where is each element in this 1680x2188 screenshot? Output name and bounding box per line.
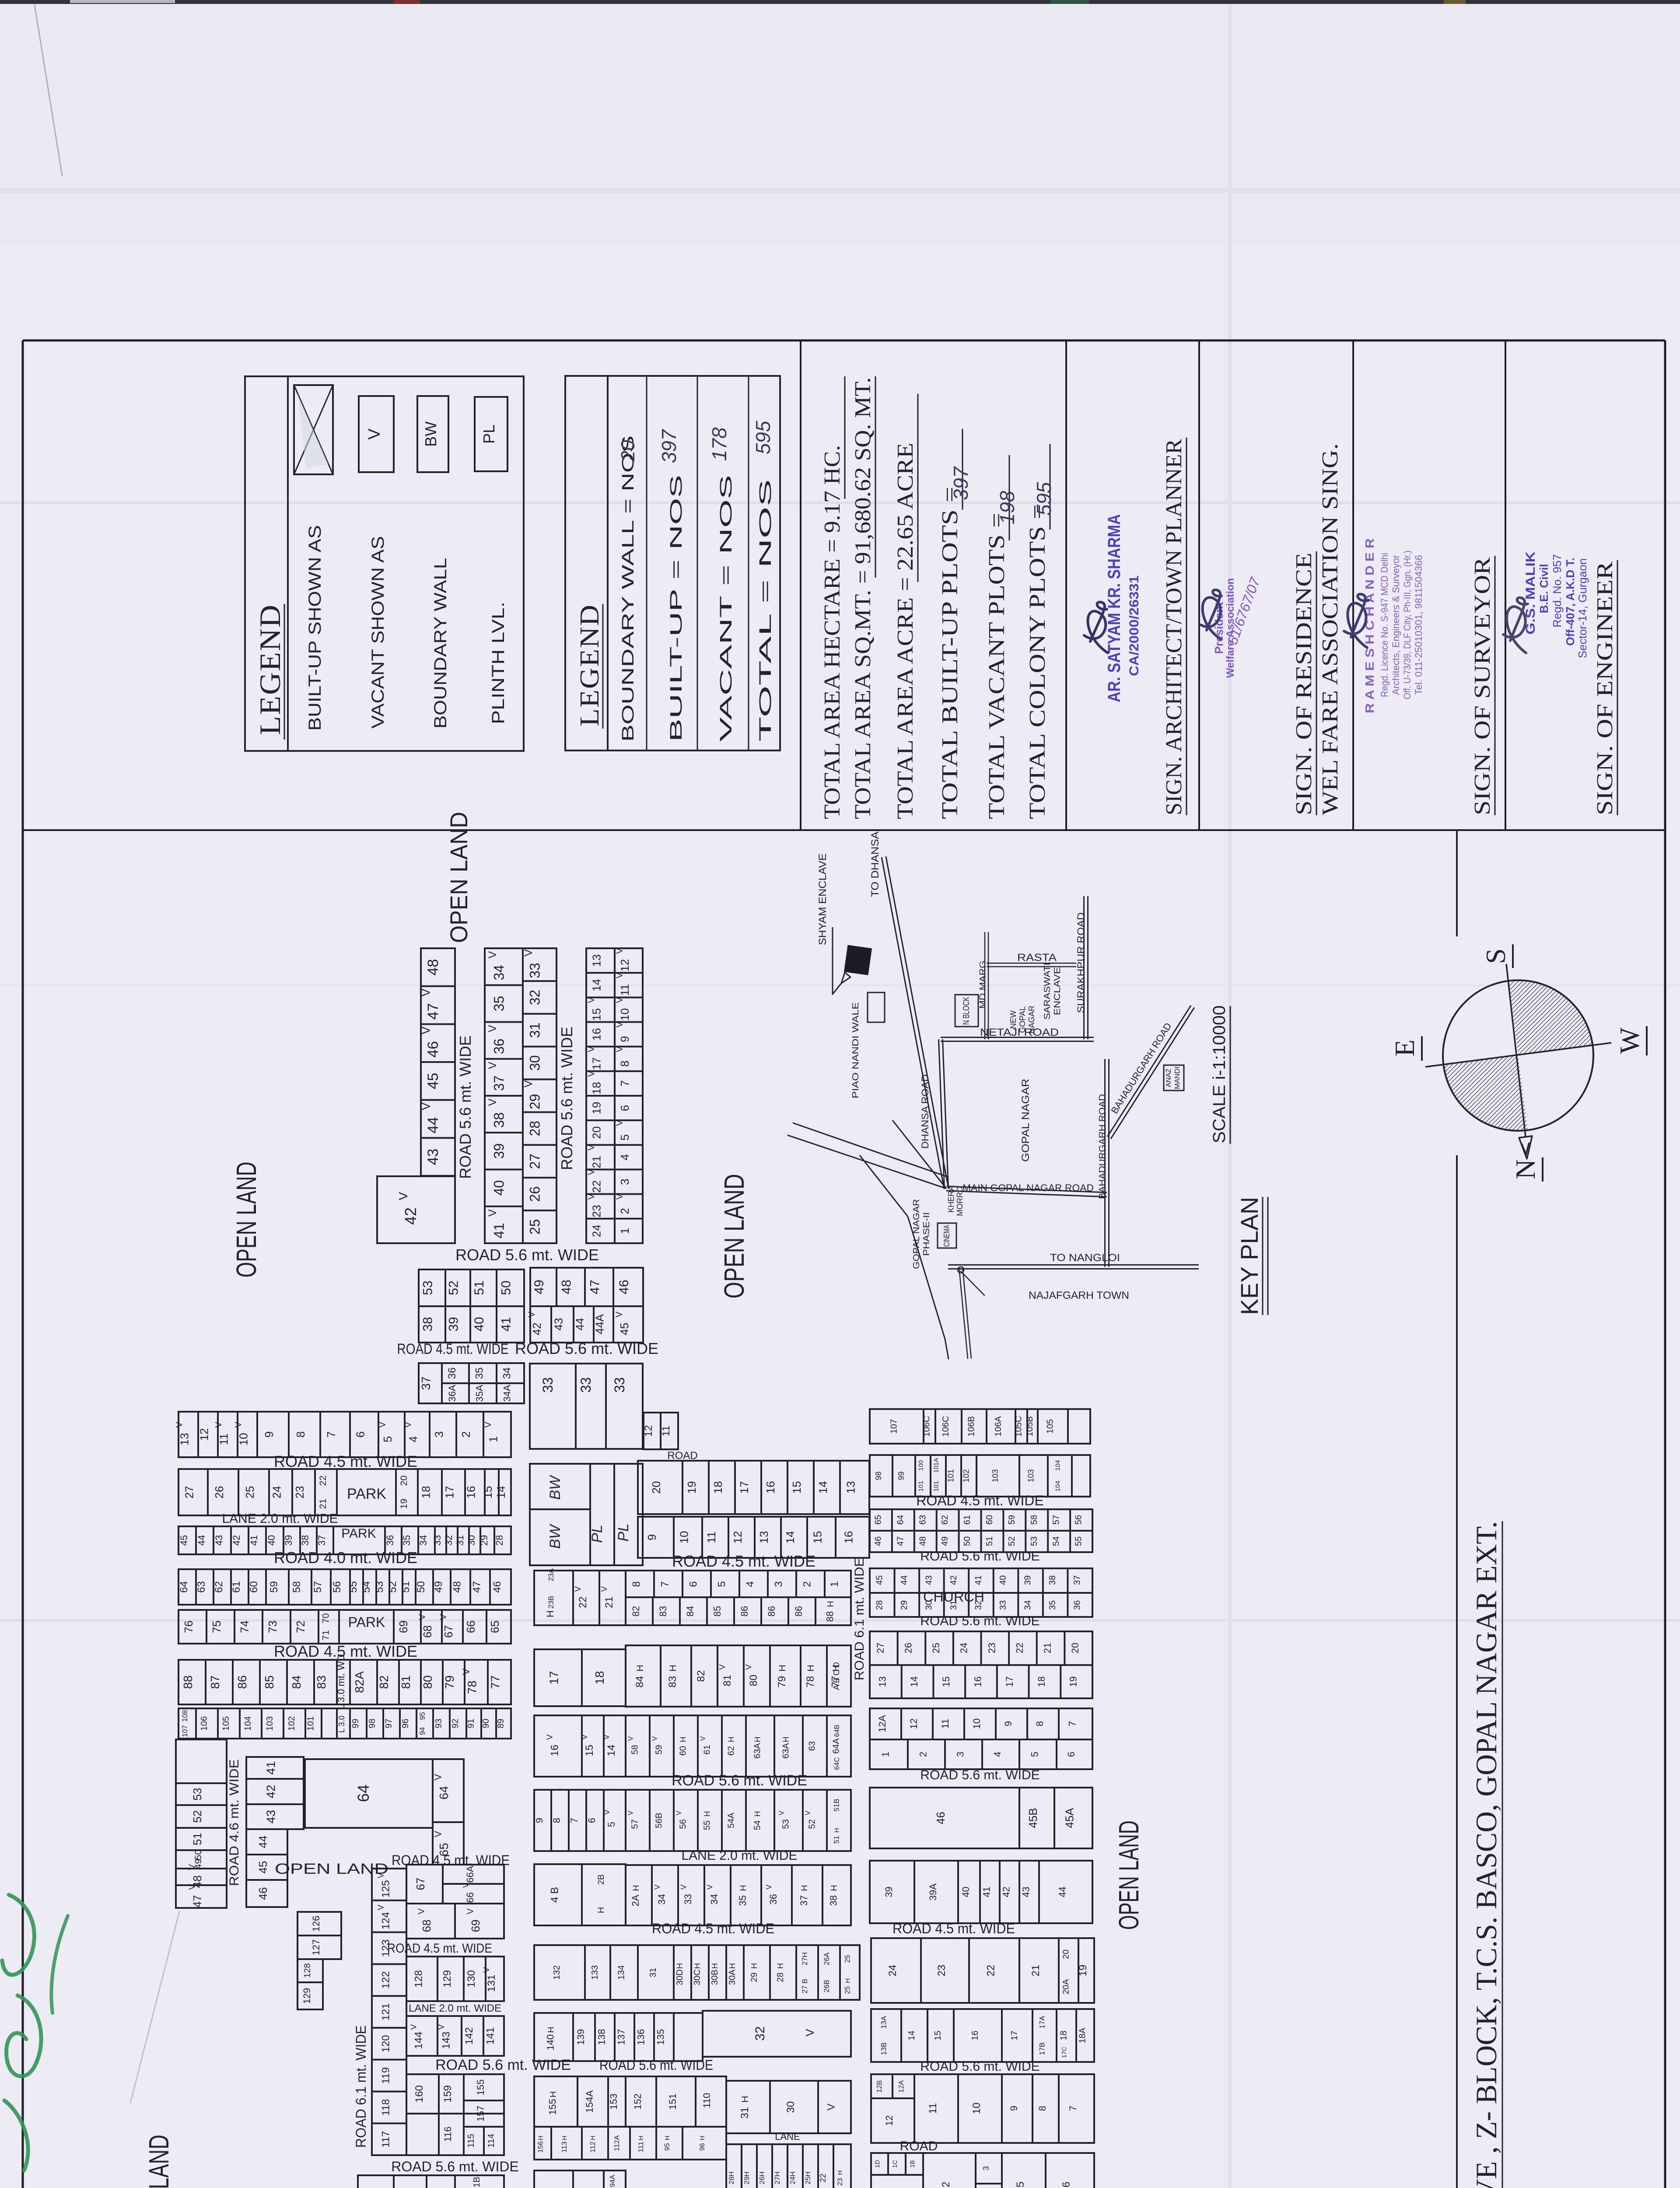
svg-text:Architects, Engineers & Survey: Architects, Engineers & Surveyor — [1390, 555, 1401, 695]
svg-text:20: 20 — [1061, 1950, 1071, 1959]
svg-text:12A: 12A — [877, 1715, 888, 1732]
svg-text:V: V — [615, 1120, 625, 1126]
svg-text:22: 22 — [985, 1965, 997, 1977]
svg-text:42: 42 — [231, 1535, 242, 1546]
svg-text:64C: 64C — [833, 1757, 841, 1770]
svg-text:78: 78 — [805, 1676, 816, 1688]
svg-text:25: 25 — [931, 1643, 941, 1653]
svg-text:63: 63 — [196, 1581, 207, 1593]
svg-text:102: 102 — [287, 1716, 297, 1731]
svg-text:V: V — [486, 1209, 499, 1217]
svg-text:16: 16 — [973, 1676, 983, 1687]
svg-text:106C: 106C — [922, 1416, 932, 1437]
svg-text:V: V — [587, 1193, 596, 1199]
svg-text:35: 35 — [491, 996, 507, 1012]
svg-text:V: V — [587, 997, 596, 1003]
svg-text:21: 21 — [318, 1499, 328, 1509]
svg-text:21: 21 — [590, 1156, 603, 1168]
svg-text:V: V — [522, 949, 535, 957]
svg-text:58: 58 — [291, 1581, 303, 1593]
svg-text:61: 61 — [703, 1745, 712, 1754]
svg-text:36: 36 — [1073, 1600, 1082, 1610]
svg-text:23: 23 — [986, 1643, 997, 1653]
svg-text:SIGN. OF SURVEYOR: SIGN. OF SURVEYOR — [1470, 557, 1495, 815]
svg-text:3: 3 — [773, 1581, 785, 1587]
svg-text:33: 33 — [432, 1535, 443, 1546]
svg-text:KEY PLAN: KEY PLAN — [1235, 1197, 1263, 1315]
svg-text:17: 17 — [590, 1057, 603, 1070]
svg-text:BW: BW — [547, 1475, 563, 1500]
svg-text:15: 15 — [941, 1676, 952, 1687]
svg-text:114: 114 — [486, 2134, 496, 2148]
svg-text:51: 51 — [191, 1833, 204, 1845]
svg-text:ROAD 5.6 mt. WIDE: ROAD 5.6 mt. WIDE — [456, 1035, 474, 1179]
svg-text:154A: 154A — [584, 2090, 595, 2113]
svg-text:101: 101 — [306, 1716, 316, 1731]
svg-text:76: 76 — [182, 1620, 195, 1633]
svg-text:3: 3 — [433, 1431, 446, 1438]
svg-text:33: 33 — [682, 1894, 693, 1904]
svg-text:V: V — [486, 951, 499, 958]
svg-text:43: 43 — [213, 1535, 224, 1546]
svg-text:WEL FARE ASSOCIATION SING.: WEL FARE ASSOCIATION SING. — [1318, 443, 1343, 815]
svg-text:27H: 27H — [774, 2171, 781, 2184]
svg-text:25: 25 — [844, 1986, 852, 1994]
svg-text:TOTAL COLONY PLOTS =: TOTAL COLONY PLOTS = — [1025, 504, 1050, 819]
svg-text:37: 37 — [419, 1376, 433, 1390]
svg-text:56: 56 — [1074, 1515, 1084, 1525]
svg-text:7: 7 — [659, 1581, 671, 1587]
svg-text:V: V — [175, 1422, 184, 1428]
svg-text:5: 5 — [606, 1822, 617, 1827]
svg-text:38: 38 — [828, 1895, 839, 1906]
svg-text:ROAD 4.5 mt. WIDE: ROAD 4.5 mt. WIDE — [387, 1941, 492, 1956]
svg-text:H: H — [753, 1811, 762, 1817]
svg-text:GOPAL NAGAR: GOPAL NAGAR — [1020, 1079, 1032, 1162]
svg-text:7: 7 — [1067, 1721, 1078, 1726]
svg-text:79: 79 — [776, 1676, 788, 1688]
svg-text:142: 142 — [463, 2027, 475, 2044]
svg-text:61: 61 — [231, 1581, 242, 1593]
svg-text:64: 64 — [178, 1581, 190, 1593]
svg-text:41: 41 — [974, 1575, 983, 1585]
svg-text:127: 127 — [311, 1939, 322, 1956]
svg-text:H: H — [675, 1963, 684, 1969]
svg-text:MANDI: MANDI — [1174, 1066, 1181, 1089]
svg-text:3: 3 — [982, 2166, 990, 2170]
svg-text:83: 83 — [315, 1675, 328, 1689]
svg-text:63: 63 — [808, 1741, 817, 1751]
svg-text:V: V — [587, 1071, 596, 1077]
svg-text:125: 125 — [380, 1880, 392, 1897]
svg-text:105C: 105C — [1014, 1416, 1024, 1437]
svg-text:2B: 2B — [596, 1874, 606, 1885]
svg-text:13: 13 — [178, 1433, 191, 1445]
svg-text:16: 16 — [590, 1028, 603, 1041]
svg-text:H: H — [667, 1665, 678, 1672]
svg-text:24: 24 — [590, 1224, 603, 1237]
svg-text:22: 22 — [577, 1596, 589, 1608]
svg-text:9: 9 — [262, 1431, 276, 1438]
svg-text:17B: 17B — [1039, 2042, 1046, 2055]
svg-text:V: V — [214, 1422, 224, 1428]
svg-text:61: 61 — [962, 1515, 972, 1525]
svg-text:60: 60 — [985, 1515, 994, 1525]
svg-text:ROAD 5.6 mt. WIDE: ROAD 5.6 mt. WIDE — [515, 1339, 658, 1357]
svg-text:V: V — [188, 1864, 197, 1870]
svg-text:87: 87 — [208, 1675, 222, 1689]
svg-text:90: 90 — [481, 1718, 491, 1728]
svg-text:SCALE i-1:10000: SCALE i-1:10000 — [1210, 1006, 1229, 1143]
svg-text:V: V — [486, 1062, 499, 1069]
svg-text:PIAO NANDI WALE: PIAO NANDI WALE — [851, 1002, 861, 1098]
svg-text:83: 83 — [658, 1606, 668, 1616]
svg-text:12A: 12A — [898, 2080, 905, 2093]
svg-text:137: 137 — [616, 2029, 627, 2045]
svg-text:Sector-14, Gurgaon: Sector-14, Gurgaon — [1576, 558, 1589, 658]
svg-text:15: 15 — [584, 1745, 595, 1757]
svg-text:104: 104 — [1055, 1460, 1062, 1471]
svg-text:37: 37 — [798, 1895, 809, 1906]
svg-text:29: 29 — [479, 1535, 490, 1546]
svg-text:V: V — [651, 1736, 659, 1741]
svg-text:23: 23 — [836, 2178, 844, 2186]
svg-text:80: 80 — [421, 1675, 434, 1689]
svg-text:6: 6 — [688, 1581, 700, 1587]
svg-text:OPEN LAND: OPEN LAND — [445, 812, 472, 943]
svg-text:86: 86 — [235, 1675, 249, 1689]
svg-text:ROAD 5.6 mt. WIDE: ROAD 5.6 mt. WIDE — [920, 1549, 1039, 1564]
svg-text:34: 34 — [656, 1894, 667, 1904]
svg-text:40: 40 — [960, 1886, 971, 1897]
svg-text:14: 14 — [784, 1531, 797, 1544]
svg-text:V: V — [778, 1810, 786, 1815]
svg-text:H: H — [739, 2096, 750, 2103]
svg-text:51B: 51B — [833, 1799, 841, 1811]
svg-text:V: V — [602, 1809, 611, 1815]
svg-text:45A: 45A — [1063, 1808, 1076, 1828]
svg-text:44: 44 — [196, 1535, 207, 1546]
svg-text:2: 2 — [459, 1431, 472, 1438]
svg-text:44A: 44A — [593, 1314, 606, 1334]
svg-text:LANE 2.0 mt. WIDE: LANE 2.0 mt. WIDE — [222, 1511, 338, 1526]
svg-text:1: 1 — [487, 1436, 500, 1442]
svg-text:27: 27 — [527, 1154, 543, 1169]
svg-text:8: 8 — [551, 1818, 562, 1823]
svg-text:157: 157 — [475, 2106, 486, 2122]
svg-text:8: 8 — [294, 1431, 307, 1438]
svg-text:7: 7 — [618, 1080, 631, 1087]
svg-text:26A: 26A — [823, 1953, 831, 1965]
svg-text:H: H — [805, 1665, 816, 1672]
svg-text:10: 10 — [237, 1433, 250, 1445]
svg-text:H: H — [834, 1828, 841, 1833]
svg-text:BW: BW — [422, 421, 440, 447]
svg-text:H: H — [679, 1737, 688, 1743]
svg-text:68: 68 — [420, 1919, 433, 1932]
svg-text:144: 144 — [413, 2032, 425, 2049]
svg-text:81: 81 — [721, 1675, 733, 1687]
svg-text:5: 5 — [618, 1134, 631, 1140]
svg-text:118: 118 — [380, 2099, 392, 2116]
svg-text:RASTA: RASTA — [1017, 952, 1057, 964]
svg-text:26B: 26B — [823, 1980, 831, 1992]
svg-text:MORRD: MORRD — [955, 1186, 964, 1216]
svg-text:V: V — [433, 1774, 444, 1780]
svg-text:15: 15 — [790, 1481, 803, 1494]
svg-text:V: V — [573, 1586, 582, 1592]
svg-text:Off-407, A.K.D T.: Off-407, A.K.D T. — [1564, 558, 1577, 645]
svg-text:N: N — [1510, 1159, 1541, 1179]
svg-text:V: V — [700, 1736, 707, 1741]
svg-text:138: 138 — [596, 2029, 607, 2045]
svg-text:11: 11 — [940, 1719, 951, 1729]
svg-text:34A: 34A — [502, 1385, 513, 1402]
svg-text:46: 46 — [491, 1581, 503, 1593]
svg-text:V: V — [522, 1080, 535, 1087]
svg-text:1: 1 — [618, 1228, 631, 1234]
svg-text:CA/2000/26331: CA/2000/26331 — [1127, 575, 1141, 676]
svg-text:82: 82 — [695, 1670, 707, 1682]
svg-text:1: 1 — [829, 1581, 840, 1587]
svg-text:143: 143 — [441, 2032, 452, 2049]
svg-text:V: V — [587, 1144, 596, 1150]
svg-text:ROAD 4.0 mt. WIDE: ROAD 4.0 mt. WIDE — [274, 1549, 417, 1567]
svg-text:V: V — [486, 1098, 499, 1106]
svg-text:L 3.0: L 3.0 — [337, 1715, 346, 1732]
svg-text:TOTAL BUILT-UP PLOTS =: TOTAL BUILT-UP PLOTS = — [938, 487, 962, 819]
svg-text:A B C D: A B C D — [832, 1662, 841, 1690]
svg-text:10: 10 — [971, 1718, 982, 1729]
svg-text:139: 139 — [575, 2029, 586, 2045]
svg-text:V: V — [376, 1904, 385, 1910]
svg-text:101: 101 — [933, 1481, 940, 1492]
svg-text:40: 40 — [472, 1317, 486, 1331]
svg-text:80: 80 — [748, 1675, 759, 1687]
svg-text:112A: 112A — [613, 2135, 621, 2151]
svg-text:39: 39 — [1023, 1575, 1033, 1585]
svg-text:19: 19 — [399, 1499, 409, 1509]
svg-text:72: 72 — [294, 1620, 307, 1633]
svg-text:62: 62 — [727, 1746, 736, 1756]
svg-text:51: 51 — [833, 1836, 841, 1844]
svg-text:4: 4 — [618, 1154, 631, 1160]
svg-text:PHASE-II: PHASE-II — [922, 1212, 931, 1256]
svg-text:71: 71 — [321, 1630, 331, 1641]
svg-text:43: 43 — [552, 1318, 565, 1331]
svg-text:124: 124 — [380, 1912, 392, 1929]
svg-text:51: 51 — [985, 1536, 994, 1546]
svg-text:34: 34 — [501, 1367, 513, 1379]
svg-text:14: 14 — [909, 1676, 920, 1687]
svg-text:ROAD 4.5 mt. WIDE: ROAD 4.5 mt. WIDE — [652, 1921, 774, 1936]
svg-text:49: 49 — [433, 1581, 444, 1593]
svg-text:98: 98 — [367, 1718, 377, 1728]
svg-text:16: 16 — [764, 1481, 777, 1494]
svg-text:45: 45 — [178, 1535, 189, 1546]
svg-text:W: W — [1614, 1027, 1645, 1054]
svg-text:V: V — [803, 2029, 816, 2037]
svg-text:LANE 2.0 mt. WIDE: LANE 2.0 mt. WIDE — [409, 2002, 501, 2014]
svg-text:PARK: PARK — [347, 1486, 386, 1502]
svg-text:5: 5 — [1029, 1752, 1040, 1757]
svg-text:V: V — [615, 1193, 625, 1199]
svg-text:H: H — [776, 1963, 785, 1969]
svg-text:13A: 13A — [880, 2016, 888, 2029]
svg-text:6: 6 — [1066, 1752, 1077, 1757]
svg-text:46: 46 — [873, 1536, 883, 1546]
svg-text:V: V — [482, 1967, 491, 1973]
svg-text:65: 65 — [873, 1515, 883, 1525]
svg-text:15: 15 — [590, 1008, 603, 1021]
svg-text:6: 6 — [1060, 2181, 1072, 2187]
svg-text:66: 66 — [464, 1620, 477, 1633]
svg-text:51: 51 — [472, 1280, 486, 1295]
svg-text:116: 116 — [442, 2126, 453, 2142]
svg-text:2: 2 — [918, 1752, 929, 1757]
svg-text:48: 48 — [918, 1536, 927, 1546]
svg-text:ROAD 5.6 mt. WIDE: ROAD 5.6 mt. WIDE — [920, 1768, 1039, 1782]
svg-text:130: 130 — [465, 1970, 477, 1988]
svg-text:TO DHANSA: TO DHANSA — [869, 831, 881, 897]
svg-text:H: H — [549, 2091, 558, 2097]
svg-text:H: H — [631, 1885, 641, 1891]
svg-text:128: 128 — [413, 1970, 425, 1988]
svg-text:ROAD 4.5 mt. WIDE: ROAD 4.5 mt. WIDE — [397, 1341, 509, 1357]
svg-text:35: 35 — [1048, 1600, 1057, 1610]
svg-text:75: 75 — [210, 1620, 223, 1633]
svg-text:99: 99 — [897, 1471, 906, 1480]
svg-text:ROAD 5.6 mt. WIDE: ROAD 5.6 mt. WIDE — [435, 2057, 571, 2073]
svg-text:55: 55 — [347, 1581, 359, 1593]
svg-text:MAIN GOPAL NAGAR ROAD: MAIN GOPAL NAGAR ROAD — [962, 1182, 1094, 1193]
svg-text:46: 46 — [256, 1887, 269, 1900]
svg-text:43: 43 — [924, 1575, 934, 1585]
svg-text:VACANT SHOWN AS: VACANT SHOWN AS — [368, 536, 388, 729]
svg-text:33: 33 — [540, 1377, 556, 1393]
svg-text:70: 70 — [321, 1613, 331, 1623]
svg-text:1B: 1B — [909, 2160, 916, 2167]
svg-text:GOPAL NAGAR: GOPAL NAGAR — [912, 1199, 921, 1269]
svg-text:51: 51 — [400, 1581, 412, 1593]
svg-text:V: V — [466, 1908, 476, 1914]
svg-text:V: V — [602, 1734, 611, 1740]
svg-text:56B: 56B — [654, 1813, 664, 1828]
svg-text:V: V — [627, 1810, 635, 1815]
svg-text:56: 56 — [679, 1819, 688, 1829]
svg-text:38: 38 — [491, 1112, 507, 1128]
svg-text:36: 36 — [385, 1535, 395, 1546]
svg-text:10: 10 — [618, 1008, 631, 1021]
svg-text:30D: 30D — [675, 1969, 685, 1985]
svg-text:57: 57 — [630, 1819, 640, 1829]
svg-text:V: V — [461, 1668, 472, 1675]
svg-text:V: V — [826, 2104, 837, 2111]
svg-text:4 B: 4 B — [549, 1887, 561, 1903]
svg-text:8: 8 — [631, 1581, 643, 1587]
svg-text:22: 22 — [819, 2174, 827, 2182]
svg-text:SIGN. OF RESIDENCE: SIGN. OF RESIDENCE — [1291, 553, 1316, 815]
svg-text:47: 47 — [471, 1581, 483, 1593]
svg-text:55: 55 — [703, 1820, 712, 1830]
svg-text:28: 28 — [494, 1535, 505, 1546]
svg-text:93: 93 — [434, 1718, 444, 1728]
svg-text:39: 39 — [447, 1317, 461, 1331]
svg-text:13: 13 — [844, 1481, 857, 1494]
svg-text:TO NANGLOI: TO NANGLOI — [1050, 1252, 1120, 1264]
svg-text:H: H — [638, 2135, 645, 2140]
svg-text:96: 96 — [699, 2143, 706, 2151]
svg-text:V: V — [378, 1422, 388, 1428]
svg-text:3: 3 — [618, 1178, 631, 1185]
svg-text:34: 34 — [1023, 1600, 1033, 1610]
svg-text:23A: 23A — [547, 1568, 555, 1581]
svg-text:44: 44 — [899, 1575, 909, 1585]
svg-text:64: 64 — [896, 1515, 905, 1525]
svg-text:GOPAL: GOPAL — [1018, 1006, 1027, 1033]
svg-text:V: V — [679, 1884, 688, 1890]
svg-text:54: 54 — [1052, 1536, 1061, 1546]
svg-text:6: 6 — [586, 1818, 597, 1823]
svg-text:SHYAM ENCLAVE: SHYAM ENCLAVE — [817, 853, 829, 945]
svg-text:40: 40 — [998, 1575, 1008, 1585]
svg-text:58: 58 — [630, 1745, 640, 1754]
svg-text:42: 42 — [1001, 1886, 1012, 1897]
svg-text:63A: 63A — [781, 1743, 791, 1759]
svg-text:25H: 25H — [805, 2171, 812, 2184]
svg-text:LANE 2.0 mt. WIDE: LANE 2.0 mt. WIDE — [681, 1848, 797, 1863]
svg-text:ROAD 5.6 mt. WIDE: ROAD 5.6 mt. WIDE — [920, 1614, 1039, 1628]
svg-text:17A: 17A — [1039, 2016, 1046, 2029]
svg-text:11: 11 — [705, 1532, 718, 1543]
svg-text:103: 103 — [265, 1716, 275, 1731]
svg-text:62: 62 — [940, 1515, 950, 1525]
svg-text:19: 19 — [590, 1102, 603, 1115]
svg-text:27: 27 — [183, 1486, 196, 1499]
svg-text:94A: 94A — [609, 2174, 616, 2187]
svg-text:1D: 1D — [874, 2160, 881, 2168]
svg-text:60: 60 — [679, 1746, 688, 1756]
svg-text:19: 19 — [1077, 1965, 1089, 1977]
svg-text:99: 99 — [351, 1718, 360, 1728]
svg-text:V: V — [615, 997, 625, 1003]
svg-text:44: 44 — [1057, 1886, 1068, 1897]
svg-text:26: 26 — [527, 1186, 543, 1202]
svg-text:106B: 106B — [967, 1416, 976, 1437]
svg-text:86: 86 — [793, 1606, 804, 1616]
svg-text:38: 38 — [421, 1317, 435, 1331]
svg-text:47: 47 — [588, 1280, 602, 1294]
svg-text:H: H — [753, 1737, 762, 1743]
svg-text:45: 45 — [618, 1322, 631, 1335]
svg-text:84: 84 — [290, 1675, 303, 1689]
svg-text:23: 23 — [293, 1486, 306, 1499]
svg-text:19: 19 — [685, 1481, 698, 1494]
svg-text:49: 49 — [940, 1536, 950, 1546]
svg-text:128: 128 — [303, 1963, 312, 1978]
svg-text:92: 92 — [451, 1718, 460, 1728]
svg-text:H: H — [727, 1737, 736, 1743]
svg-text:8: 8 — [1037, 2106, 1048, 2111]
svg-text:ROAD 5.6 mt. WIDE: ROAD 5.6 mt. WIDE — [672, 1772, 807, 1789]
svg-text:ROAD 6.1 mt. WIDE: ROAD 6.1 mt. WIDE — [353, 2025, 369, 2148]
svg-text:595: 595 — [752, 421, 774, 454]
svg-text:1C: 1C — [891, 2160, 898, 2168]
svg-text:31: 31 — [455, 1535, 465, 1546]
svg-text:V: V — [419, 989, 432, 996]
svg-text:ROAD 4.6 mt. WIDE: ROAD 4.6 mt. WIDE — [227, 1759, 241, 1886]
svg-text:NAJAFGARH TOWN: NAJAFGARH TOWN — [1029, 1290, 1129, 1301]
